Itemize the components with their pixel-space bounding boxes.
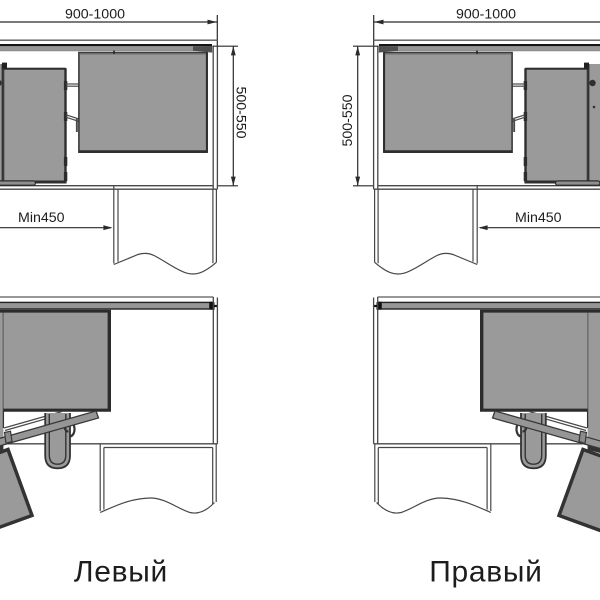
svg-text:Min450: Min450 <box>18 210 65 226</box>
svg-text:500-550: 500-550 <box>233 86 249 138</box>
svg-text:Min450: Min450 <box>515 210 562 226</box>
svg-text:900-1000: 900-1000 <box>65 7 125 23</box>
svg-text:Правый: Правый <box>429 555 542 588</box>
svg-text:500-550: 500-550 <box>340 94 356 146</box>
svg-text:900-1000: 900-1000 <box>456 7 516 23</box>
svg-text:Левый: Левый <box>74 555 168 588</box>
